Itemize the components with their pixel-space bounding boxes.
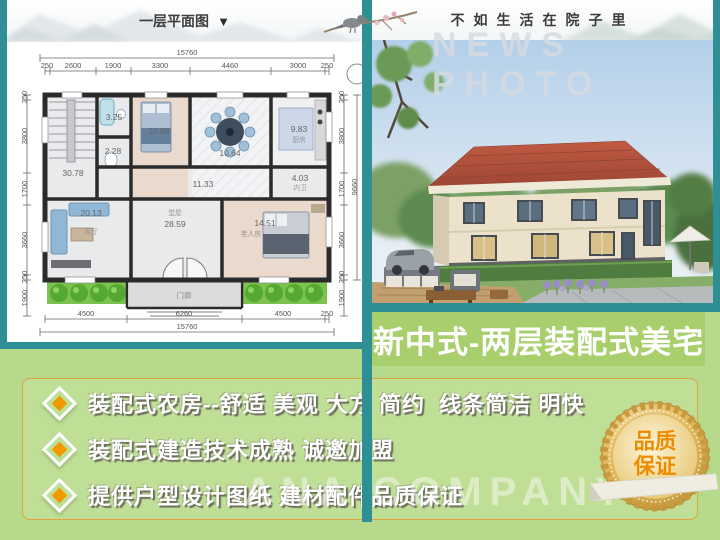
seal-text-top: 品质 (634, 429, 677, 453)
room-area-label: 10.64 (219, 148, 241, 158)
poster: 一层平面图 ▼ 不如生活在院子里 (0, 0, 720, 540)
plan-title: 一层平面图 ▼ (7, 0, 362, 42)
compass-icon (347, 64, 362, 84)
diamond-bullet-icon (42, 385, 77, 420)
dim-label: 3000 (290, 61, 307, 70)
room-area-label: 10.89 (148, 126, 170, 136)
room-name-label: 老人房 (241, 229, 262, 238)
dim-label: 15760 (177, 48, 198, 57)
floor-plan-panel: 15760 250 2600 1900 3300 4460 3000 250 4… (7, 42, 362, 342)
dim-label: 250 (321, 309, 334, 318)
dim-label: 250 (321, 61, 334, 70)
dim-label: 1900 (105, 61, 122, 70)
dim-label: 1900 (20, 290, 29, 307)
room-area-label: 14.51 (254, 218, 276, 228)
room-area-label: 11.33 (193, 179, 214, 189)
room-area-label: 3.25 (106, 112, 123, 122)
dim-label: 6260 (176, 309, 193, 318)
room-area-label: 4.03 (292, 173, 309, 183)
room-name-label: 客厅 (84, 227, 98, 236)
frame-left (0, 0, 7, 349)
dim-label: 250 (337, 271, 346, 284)
room-name-label: 厨房 (292, 135, 306, 144)
dim-label: 2600 (65, 61, 82, 70)
company-watermark: ANA COMPANY (244, 470, 630, 515)
frame-horizontal-right (372, 303, 720, 312)
down-triangle-icon: ▼ (217, 14, 230, 29)
floor-plan-drawing: 15760 250 2600 1900 3300 4460 3000 250 4… (7, 42, 362, 342)
dim-label: 250 (41, 61, 54, 70)
house (427, 141, 671, 276)
dim-label: 1700 (337, 181, 346, 198)
dim-label: 1900 (337, 290, 346, 307)
feature-text: 装配式农房--舒适 美观 大方 简约 线条简洁 明快 (88, 387, 584, 419)
seal-text-bottom: 保证 (633, 455, 677, 479)
dim-label: 250 (20, 91, 29, 104)
room-area-label: 2.28 (105, 146, 122, 156)
room-area-label: 30.78 (62, 168, 84, 178)
frame-divider (362, 0, 372, 522)
room-name-label: 堂屋 (168, 208, 182, 217)
room-area-label: 20.13 (80, 208, 102, 218)
bird-branch-icon (322, 2, 422, 42)
room-area-label: 9.83 (291, 124, 308, 134)
feature-text: 装配式建造技术成熟 诚邀加盟 (88, 433, 394, 465)
banner-title: 新中式-两层装配式美宅 (372, 312, 705, 366)
diamond-bullet-icon (42, 477, 77, 512)
dim-label: 4500 (275, 309, 292, 318)
diamond-bullet-inner (52, 395, 68, 411)
diamond-bullet-inner (52, 487, 68, 503)
diamond-bullet-icon (42, 431, 77, 466)
plan-title-text: 一层平面图 (139, 11, 209, 31)
dim-label: 4460 (222, 61, 239, 70)
diamond-bullet-inner (52, 441, 68, 457)
dim-label: 9660 (350, 179, 359, 196)
dim-label: 3800 (337, 128, 346, 145)
dim-label: 250 (337, 91, 346, 104)
dim-label: 3660 (337, 232, 346, 249)
room-area-label: 28.59 (164, 219, 186, 229)
porch-label: 门廊 (177, 290, 192, 300)
dim-label: 3800 (20, 128, 29, 145)
quality-seal-graphic: 品质 保证 (590, 396, 720, 532)
dim-label: 3660 (20, 232, 29, 249)
news-photo-watermark: NEWS PHOTO (432, 26, 720, 104)
dim-label: 15760 (177, 322, 198, 331)
dim-label: 250 (20, 271, 29, 284)
dim-label: 4500 (78, 309, 95, 318)
frame-horizontal-left (0, 342, 362, 349)
dim-label: 1700 (20, 181, 29, 198)
room-name-label: 内卫 (293, 183, 307, 192)
dim-label: 3300 (152, 61, 169, 70)
quality-seal: 品质 保证 (590, 396, 720, 532)
